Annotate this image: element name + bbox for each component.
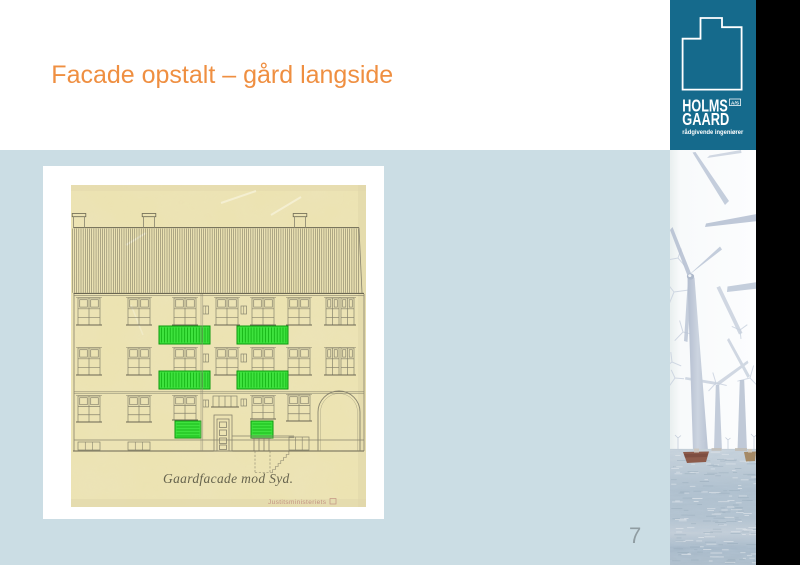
- svg-text:rådgivende ingeniører: rådgivende ingeniører: [682, 128, 743, 136]
- svg-text:Gaardfacade mod Syd.: Gaardfacade mod Syd.: [163, 471, 293, 486]
- svg-text:A/S: A/S: [731, 100, 739, 105]
- svg-text:Justitsministeriets: Justitsministeriets: [268, 499, 327, 506]
- svg-text:GAARD: GAARD: [682, 109, 729, 129]
